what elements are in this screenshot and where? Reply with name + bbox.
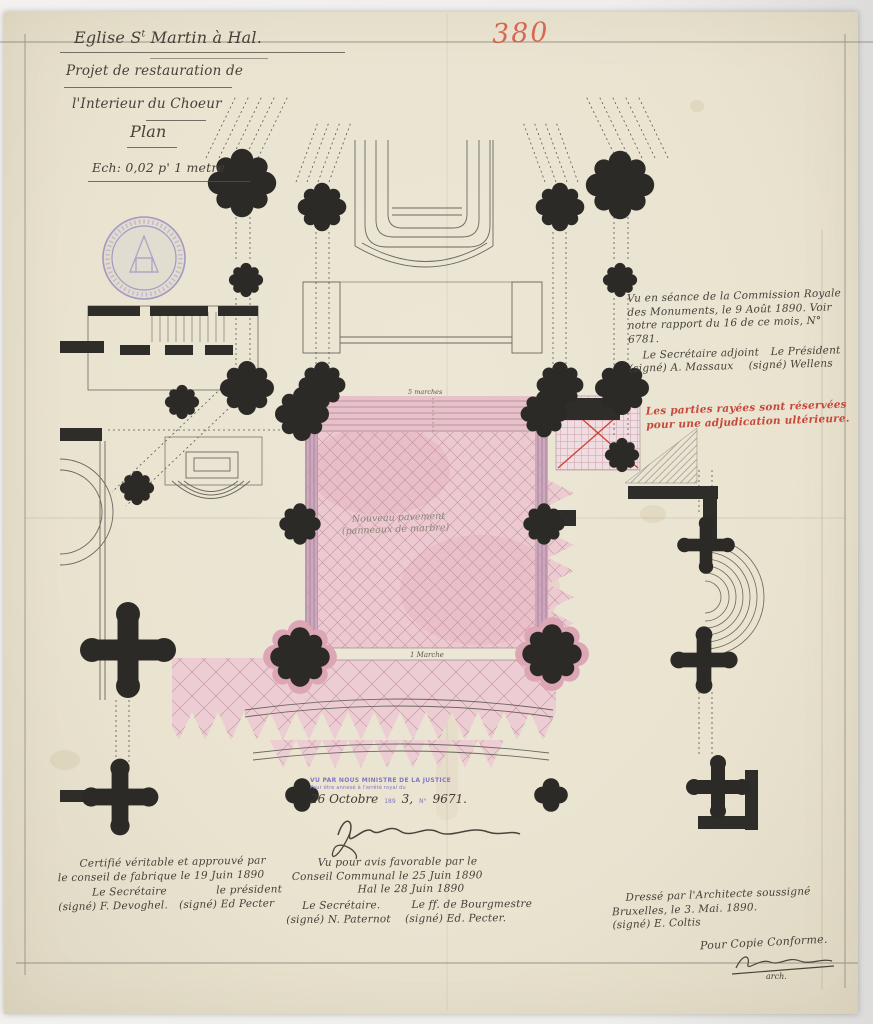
stamp-hand-year: 3, [402, 792, 413, 806]
label-top-steps: 5 marches [408, 388, 443, 396]
plan-label: Plan [130, 122, 167, 141]
title-rule [127, 147, 177, 148]
title-rule [60, 52, 345, 53]
drawing-title: Eglise St Martin à Hal. [74, 28, 262, 47]
secretary-title: Le Secrétaire. [302, 899, 380, 913]
church-seal-stamp [100, 214, 188, 302]
subtitle-line: Projet de restauration de [66, 63, 243, 79]
secretary-signature: (signé) A. Massaux [629, 360, 734, 376]
stamp-line: Pour être annexé à l'arrêté royal du [310, 785, 500, 791]
mayor-signature: (signé) Ed. Pecter. [405, 912, 506, 927]
title-rule [150, 58, 268, 59]
president-signature: (signé) Ed Pecter [179, 897, 274, 912]
subtitle-line: l'Interieur du Choeur [72, 96, 222, 112]
title-rule [146, 120, 206, 121]
architect-note: Dressé par l'Architecte soussigné Bruxel… [611, 884, 862, 934]
architect-caption: arch. [766, 972, 787, 981]
fabric-council-note: Certifié véritable et approuvé par le co… [58, 854, 311, 915]
mayor-title: Le ff. de Bourgmestre [411, 898, 532, 913]
stamp-line: VU PAR NOUS MINISTRE DE LA JUSTICE [310, 777, 500, 784]
president-signature: (signé) Wellens [749, 358, 834, 374]
stamp-hand-number: 9671. [433, 792, 467, 806]
scanned-plan-sheet: 5 marches Nouveau pavement (panneaux de … [0, 0, 873, 1024]
scale-note: Ech: 0,02 p' 1 metre [92, 160, 225, 175]
secretary-signature: (signé) F. Devoghel. [58, 899, 168, 915]
communal-council-note: Vu pour avis favorable par le Conseil Co… [286, 855, 537, 927]
ministry-stamp: VU PAR NOUS MINISTRE DE LA JUSTICE Pour … [310, 777, 500, 806]
label-bottom-step: 1 Marche [410, 651, 444, 659]
inventory-number: 380 [491, 17, 550, 50]
commission-note: Vu en séance de la Commission Royale des… [627, 287, 847, 377]
title-rule [88, 181, 250, 182]
secretary-signature: (signé) N. Paternot [286, 913, 391, 928]
stamp-printed-year: 189 [384, 798, 395, 805]
president-title: le président [216, 884, 282, 899]
stamp-number-label: N° [419, 798, 427, 805]
title-rule [64, 87, 232, 88]
stamp-hand-date: 26 Octobre [310, 792, 378, 806]
secretary-title: Le Secrétaire [92, 886, 167, 901]
